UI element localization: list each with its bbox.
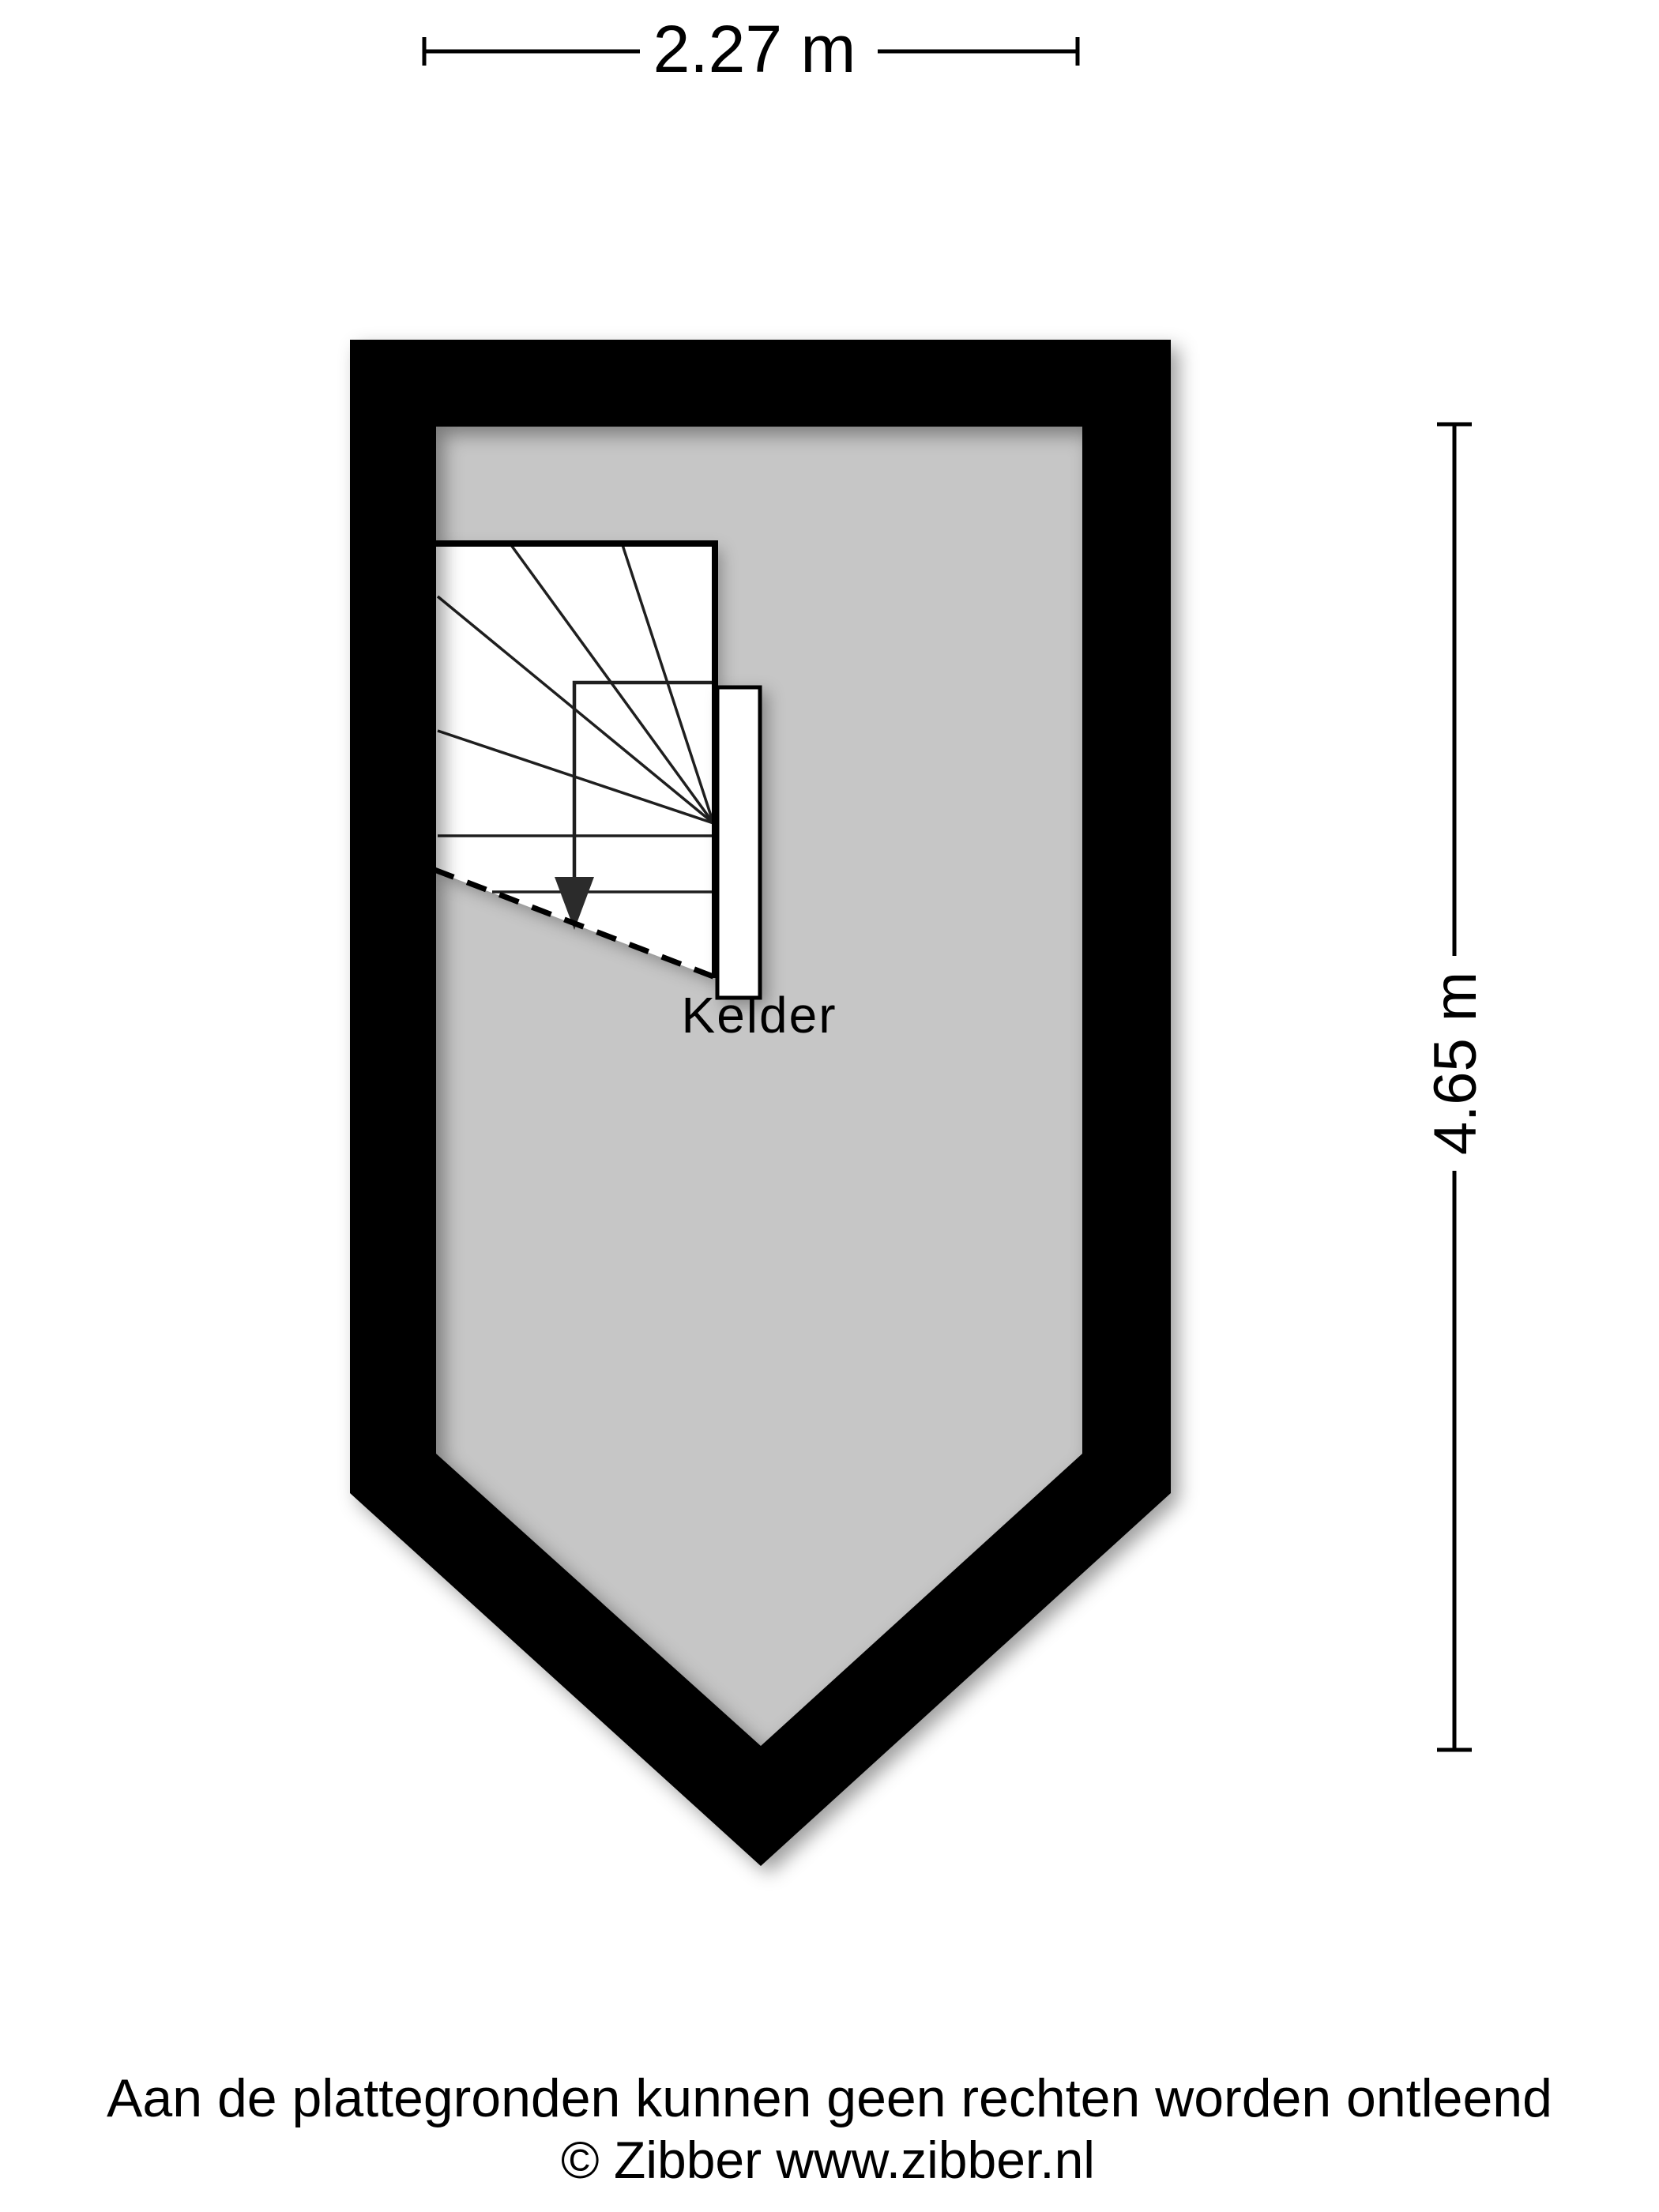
height-dimension-label: 4.65 m [1426,972,1486,1155]
footer-disclaimer: Aan de plattegronden kunnen geen rechten… [107,2071,1552,2125]
door-panel [717,687,760,998]
floorplan-canvas: 2.27 m 4.65 m Kelder Aan de plattegronde… [0,0,1659,2212]
footer-copyright: © Zibber www.zibber.nl [561,2134,1095,2186]
room-label: Kelder [682,990,837,1040]
floorplan-drawing [0,0,1659,2212]
width-dimension-label: 2.27 m [653,16,856,82]
